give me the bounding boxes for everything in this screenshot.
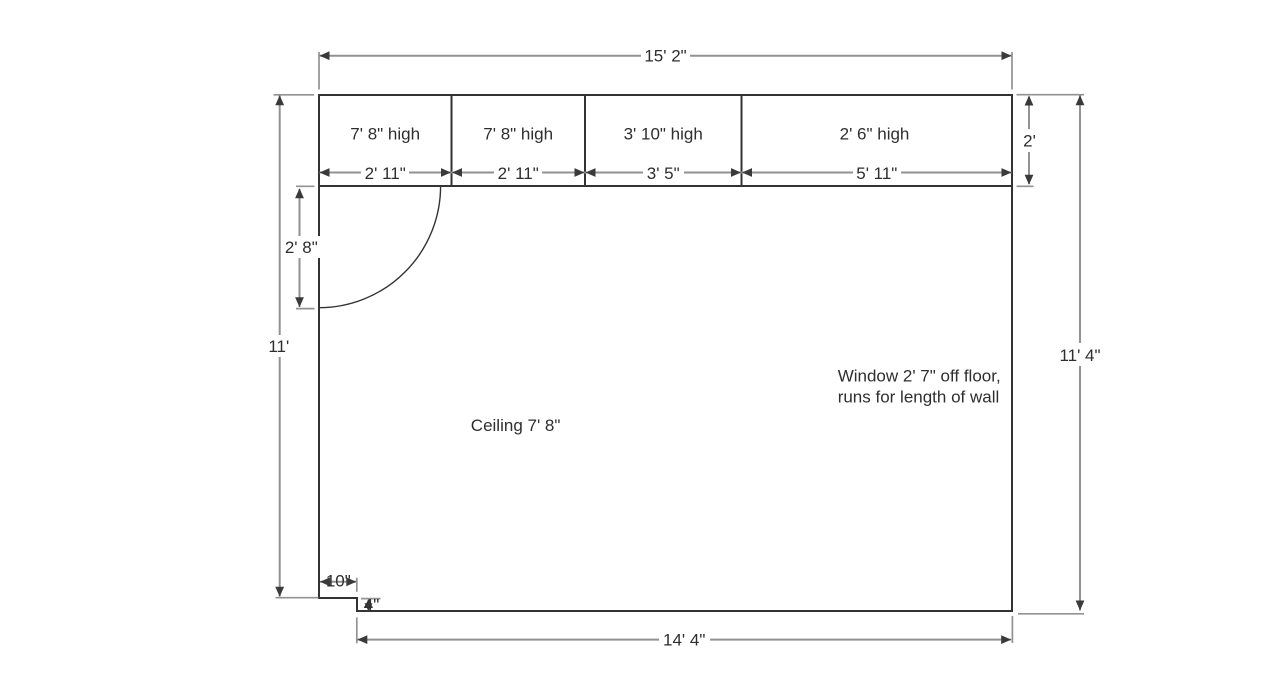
svg-text:4": 4" (364, 595, 380, 614)
svg-text:7' 8" high: 7' 8" high (350, 125, 420, 144)
svg-text:5' 11": 5' 11" (856, 164, 897, 183)
svg-text:3' 10" high: 3' 10" high (624, 125, 703, 144)
svg-text:2' 11": 2' 11" (498, 164, 539, 183)
svg-text:3' 5": 3' 5" (647, 164, 680, 183)
svg-text:Ceiling 7' 8": Ceiling 7' 8" (471, 416, 561, 435)
svg-text:14' 4": 14' 4" (663, 631, 705, 650)
svg-text:2' 11": 2' 11" (365, 164, 406, 183)
svg-text:15' 2": 15' 2" (644, 47, 686, 66)
svg-text:Window 2' 7" off floor,: Window 2' 7" off floor, (838, 367, 1001, 386)
svg-text:11' 4": 11' 4" (1059, 346, 1100, 365)
svg-text:2' 8": 2' 8" (285, 238, 318, 257)
svg-text:2' 6" high: 2' 6" high (840, 125, 910, 144)
svg-text:runs for length of wall: runs for length of wall (838, 388, 1000, 407)
svg-text:10": 10" (326, 572, 351, 591)
svg-text:2': 2' (1023, 132, 1036, 151)
svg-text:11': 11' (268, 337, 289, 356)
svg-text:7' 8" high: 7' 8" high (483, 125, 553, 144)
